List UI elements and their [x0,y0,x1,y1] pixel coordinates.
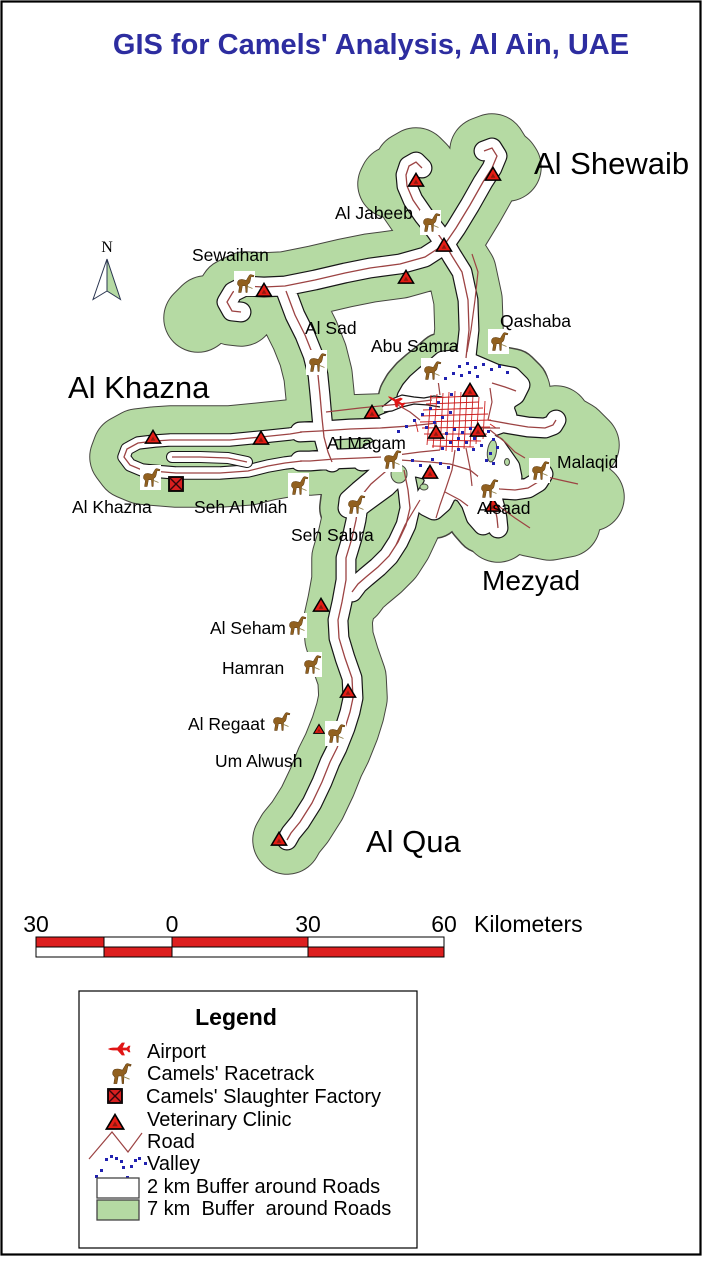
svg-text:Veterinary Clinic: Veterinary Clinic [147,1109,292,1131]
svg-text:Sewaihan: Sewaihan [192,245,269,265]
svg-text:Al Regaat: Al Regaat [188,714,265,734]
svg-text:Al Qua: Al Qua [366,824,462,859]
svg-text:GIS for Camels' Analysis, Al A: GIS for Camels' Analysis, Al Ain, UAE [113,29,629,61]
svg-text:Alsaad: Alsaad [477,498,531,518]
svg-text:30: 30 [23,911,49,937]
svg-text:Legend: Legend [195,1004,277,1030]
svg-text:Malaqid: Malaqid [557,452,618,472]
svg-text:Seh Sabra: Seh Sabra [291,525,374,545]
svg-text:Al Sad: Al Sad [305,318,357,338]
svg-text:Kilometers: Kilometers [474,911,583,937]
svg-text:N: N [101,239,113,256]
svg-text:Valley: Valley [147,1153,200,1175]
svg-text:Mezyad: Mezyad [482,565,580,596]
svg-text:60: 60 [431,911,457,937]
svg-text:Hamran: Hamran [222,658,284,678]
svg-text:Camels' Racetrack: Camels' Racetrack [147,1063,315,1085]
svg-text:Seh Al Miah: Seh Al Miah [194,497,287,517]
svg-text:2 km Buffer around Roads: 2 km Buffer around Roads [147,1176,380,1198]
svg-text:30: 30 [295,911,321,937]
svg-text:Abu Samra: Abu Samra [371,336,459,356]
svg-text:Al Jabeeb: Al Jabeeb [335,203,413,223]
svg-text:Al Khazna: Al Khazna [68,370,210,405]
svg-text:Qashaba: Qashaba [500,311,571,331]
svg-text:Al Khazna: Al Khazna [72,497,152,517]
svg-text:Al Shewaib: Al Shewaib [534,146,689,181]
svg-text:Al Magam: Al Magam [327,433,406,453]
svg-text:Airport: Airport [147,1041,206,1063]
svg-text:7 km Buffer around Roads: 7 km Buffer around Roads [147,1198,391,1220]
svg-text:0: 0 [166,911,179,937]
svg-text:Al Seham: Al Seham [210,618,286,638]
svg-text:Camels' Slaughter Factory: Camels' Slaughter Factory [146,1086,381,1108]
svg-text:Um Alwush: Um Alwush [215,751,303,771]
svg-text:Road: Road [147,1131,195,1153]
